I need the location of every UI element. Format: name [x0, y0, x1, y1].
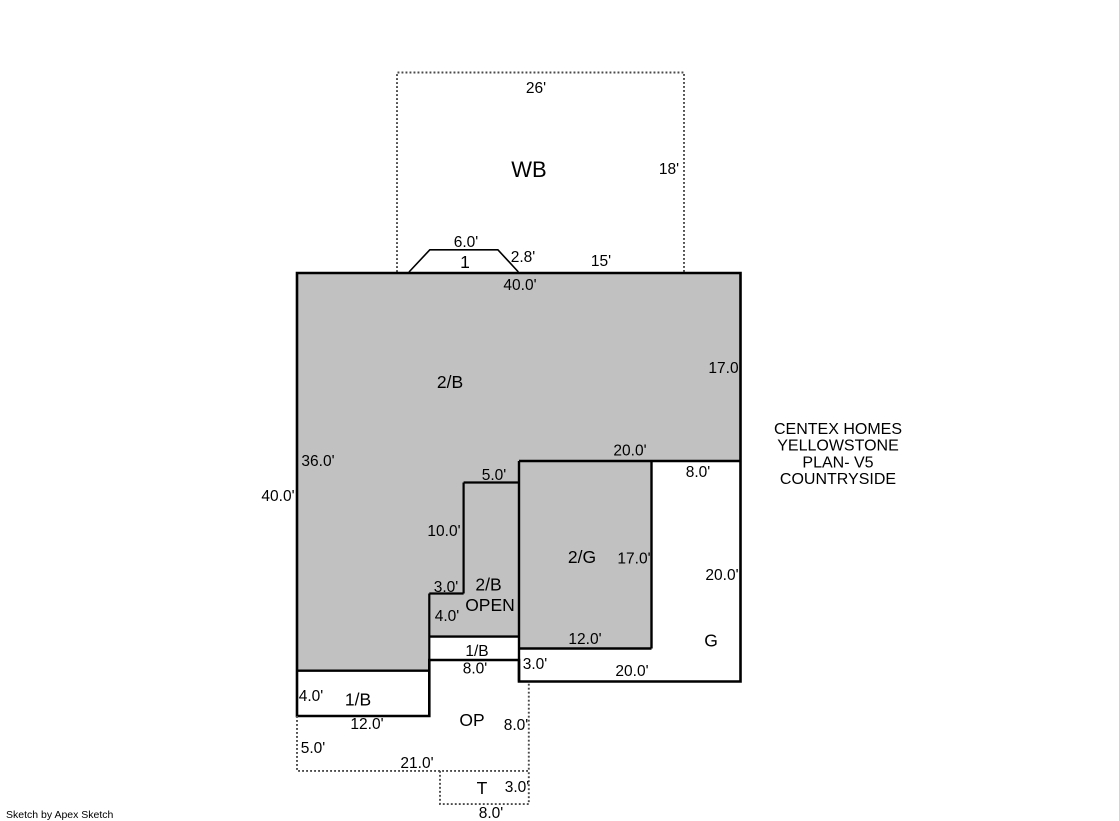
svg-text:5.0': 5.0': [482, 467, 507, 484]
svg-text:3.0': 3.0': [505, 779, 530, 796]
svg-text:12.0': 12.0': [350, 716, 383, 733]
svg-text:OP: OP: [459, 710, 484, 730]
svg-text:CENTEX HOMES: CENTEX HOMES: [774, 421, 902, 438]
svg-text:26': 26': [526, 80, 546, 97]
svg-text:2.8': 2.8': [511, 249, 536, 266]
svg-text:10.0': 10.0': [427, 523, 460, 540]
svg-text:18': 18': [659, 161, 679, 178]
svg-text:YELLOWSTONE: YELLOWSTONE: [777, 438, 899, 455]
svg-text:5.0': 5.0': [301, 740, 326, 757]
svg-text:COUNTRYSIDE: COUNTRYSIDE: [780, 471, 896, 488]
svg-text:1/B: 1/B: [345, 690, 371, 710]
svg-text:20.0': 20.0': [615, 663, 648, 680]
svg-text:1: 1: [460, 252, 470, 272]
svg-text:2/B: 2/B: [475, 575, 501, 595]
svg-text:12.0': 12.0': [568, 631, 601, 648]
svg-text:2/B: 2/B: [437, 372, 463, 392]
svg-text:T: T: [477, 778, 488, 798]
svg-text:15': 15': [591, 253, 611, 270]
svg-text:OPEN: OPEN: [465, 595, 515, 615]
svg-text:8.0': 8.0': [479, 805, 504, 821]
svg-text:20.0': 20.0': [613, 443, 646, 460]
svg-text:36.0': 36.0': [301, 453, 334, 470]
svg-text:40.0': 40.0': [503, 277, 536, 294]
svg-text:4.0': 4.0': [299, 688, 324, 705]
svg-text:6.0': 6.0': [454, 234, 479, 251]
svg-text:3.0': 3.0': [523, 656, 548, 673]
svg-text:8.0': 8.0': [686, 464, 711, 481]
svg-text:40.0': 40.0': [261, 488, 294, 505]
svg-text:17.0': 17.0': [617, 551, 650, 568]
svg-text:PLAN- V5: PLAN- V5: [802, 454, 873, 471]
svg-text:8.0': 8.0': [463, 661, 488, 678]
svg-text:1/B: 1/B: [465, 643, 488, 660]
svg-text:21.0': 21.0': [400, 755, 433, 772]
svg-text:WB: WB: [511, 157, 546, 182]
svg-text:17.0': 17.0': [708, 360, 741, 377]
svg-text:20.0': 20.0': [705, 567, 738, 584]
svg-text:4.0': 4.0': [435, 608, 460, 625]
svg-text:2/G: 2/G: [568, 547, 596, 567]
svg-text:G: G: [704, 631, 718, 651]
svg-text:Sketch by Apex Sketch: Sketch by Apex Sketch: [6, 809, 114, 821]
svg-text:3.0': 3.0': [434, 579, 459, 596]
svg-text:8.0': 8.0': [504, 717, 529, 734]
